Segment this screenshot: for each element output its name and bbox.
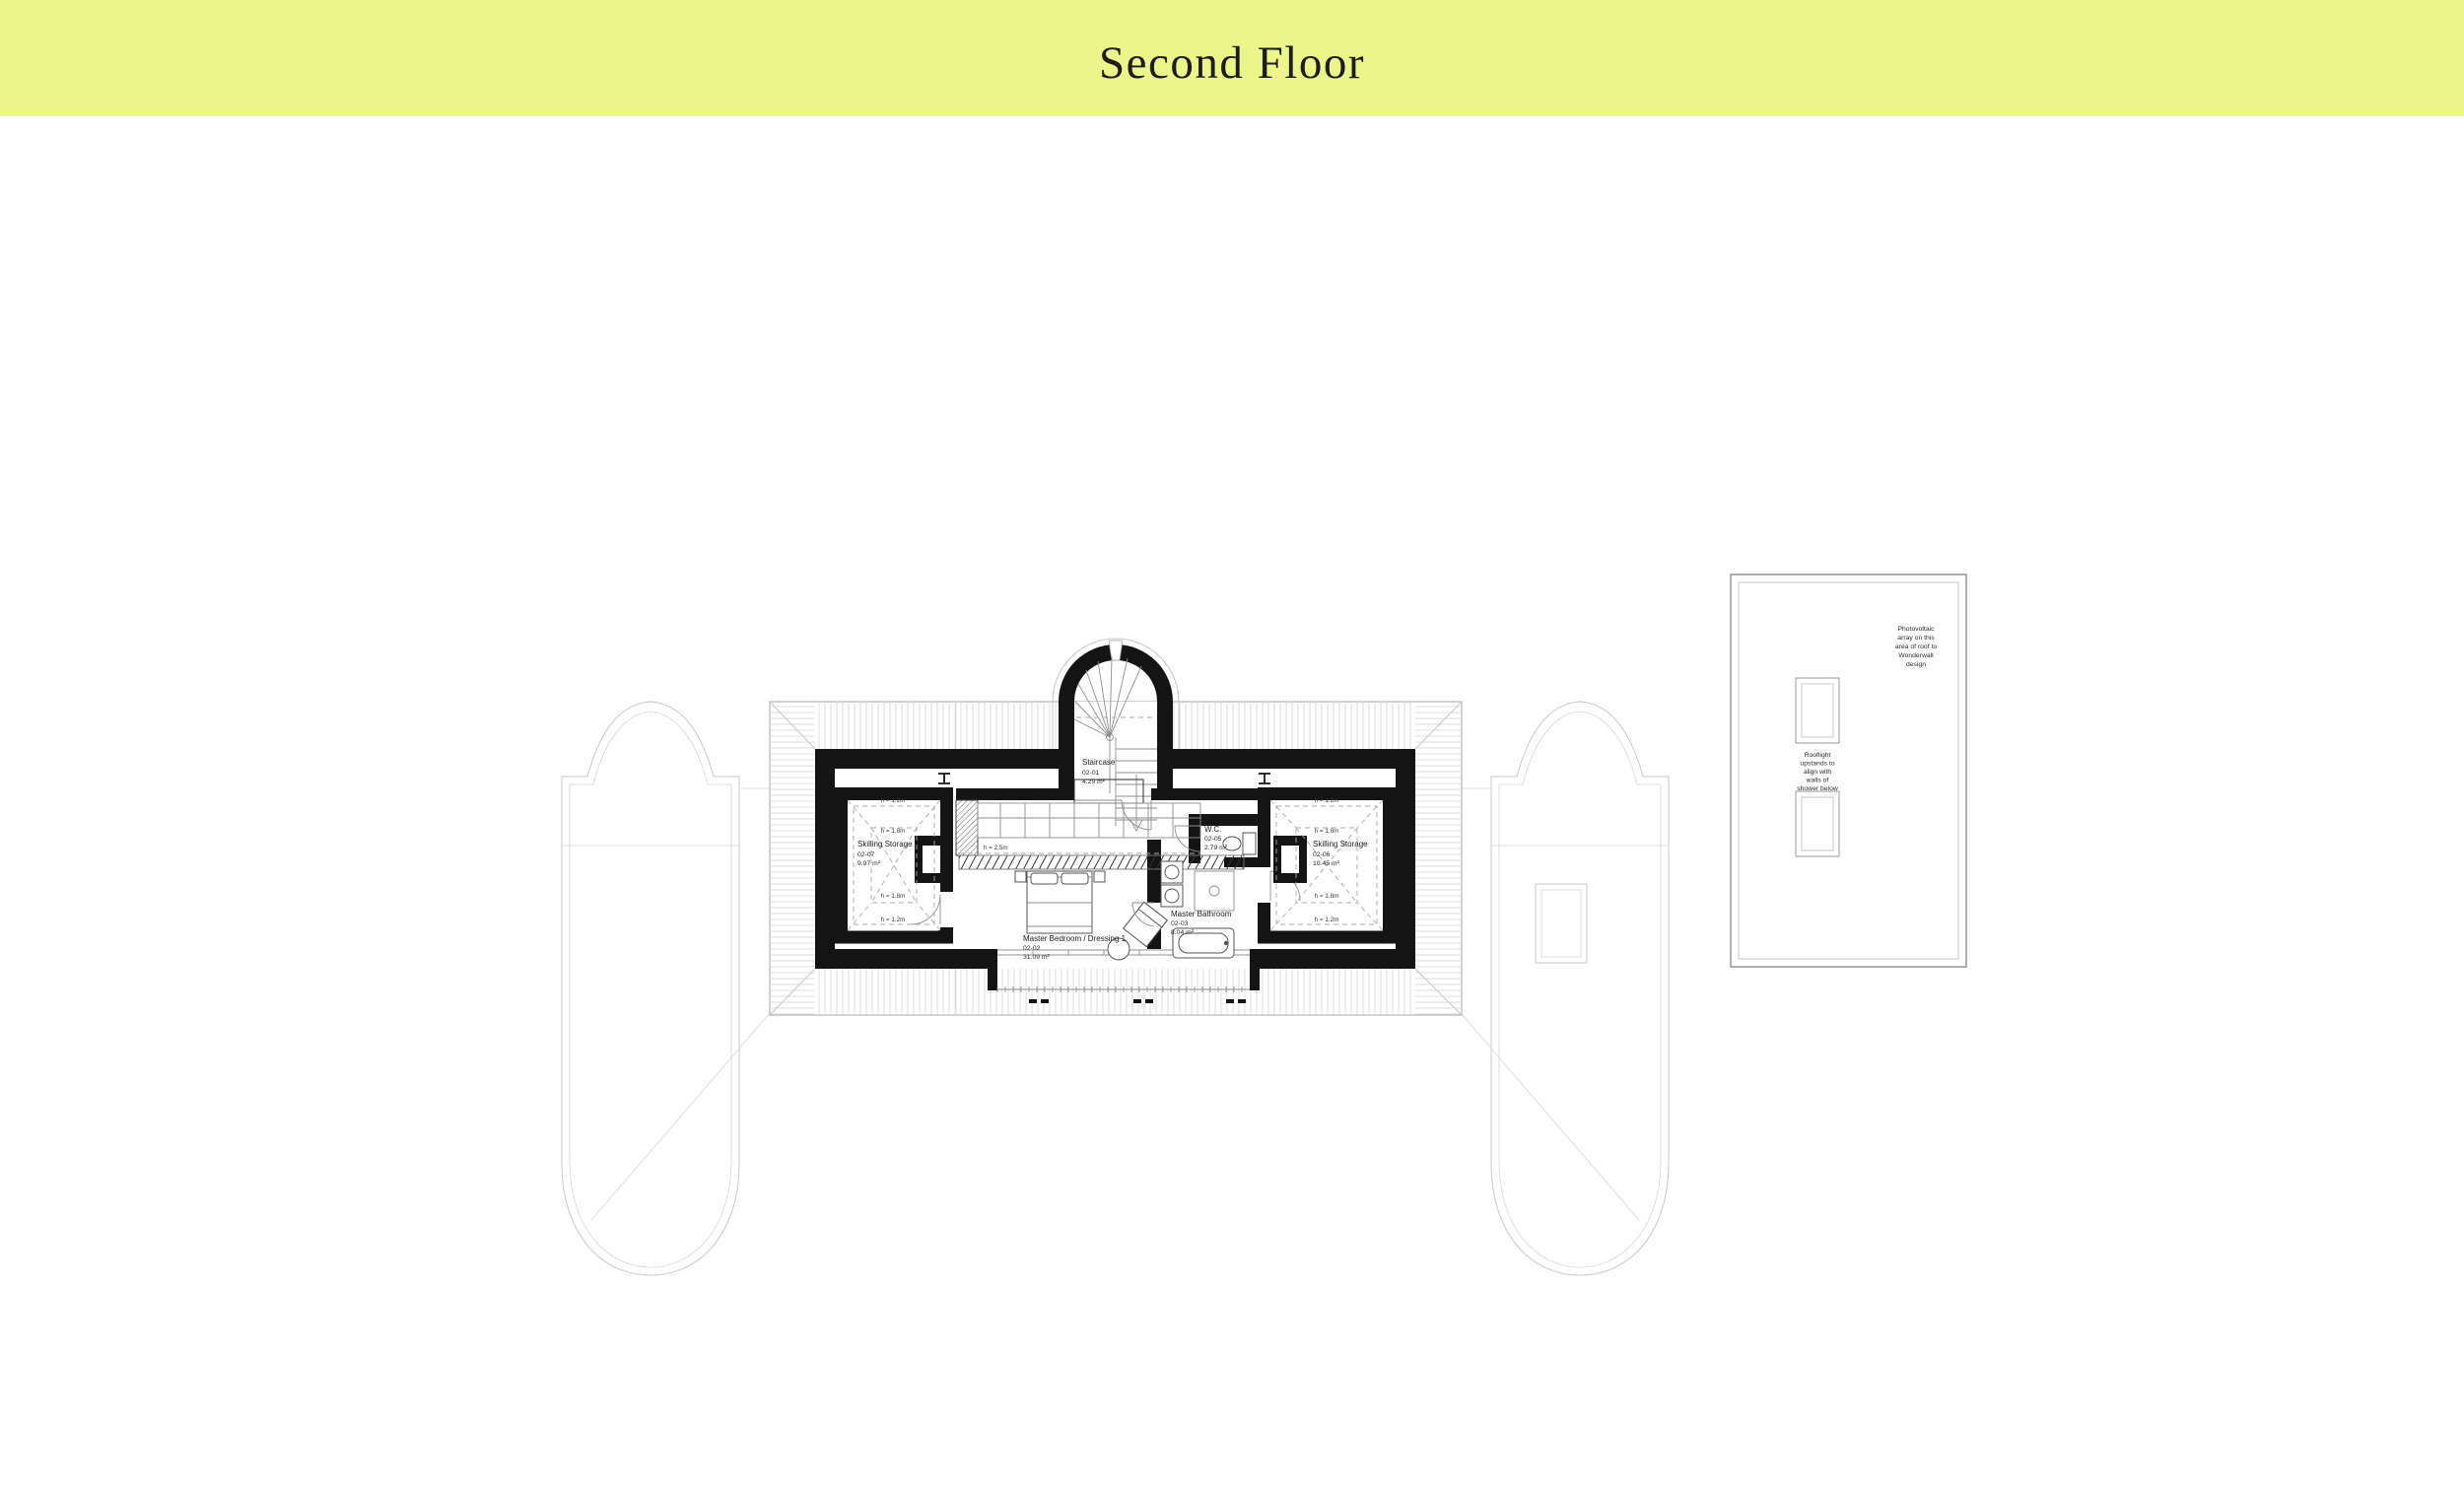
height-label: h = 1.2m <box>1315 797 1339 804</box>
toilet <box>1243 833 1256 854</box>
svg-text:design: design <box>1906 661 1926 668</box>
svg-text:Wonderwall: Wonderwall <box>1898 652 1934 659</box>
svg-text:02-06: 02-06 <box>1313 851 1331 858</box>
height-label: h = 1.8m <box>881 893 906 900</box>
height-label: h = 1.8m <box>1315 893 1339 900</box>
svg-text:02-03: 02-03 <box>1171 920 1189 927</box>
svg-text:02-02: 02-02 <box>1023 945 1041 952</box>
svg-text:8.04 m²: 8.04 m² <box>1171 929 1195 936</box>
svg-text:10.45 m²: 10.45 m² <box>1313 860 1340 867</box>
bed <box>1015 871 1105 933</box>
svg-text:9.97 m²: 9.97 m² <box>857 860 881 867</box>
roof-plan-panel: Rooflight upstands to align with walls o… <box>1731 575 1966 967</box>
page-canvas: Second Floor <box>0 0 2464 1493</box>
hanging-rail <box>959 855 1244 869</box>
height-label: h = 1.2m <box>881 916 906 923</box>
svg-text:Photovoltaic: Photovoltaic <box>1897 626 1935 633</box>
svg-text:2.79 m²: 2.79 m² <box>1204 845 1228 851</box>
room-skilling-storage-06: h = 1.2m h = 1.8m h = 1.8m h = 1.2m Skil… <box>1258 794 1390 938</box>
svg-text:walls of: walls of <box>1806 778 1829 784</box>
svg-text:Master Bathroom: Master Bathroom <box>1171 910 1232 918</box>
svg-text:02-01: 02-01 <box>1082 770 1100 777</box>
svg-text:Skilling Storage: Skilling Storage <box>857 840 913 848</box>
svg-text:31.09 m²: 31.09 m² <box>1023 954 1051 961</box>
height-label: h = 1.8m <box>881 828 906 835</box>
svg-text:Master Bedroom / Dressing 1: Master Bedroom / Dressing 1 <box>1023 934 1127 943</box>
svg-text:Staircase: Staircase <box>1082 758 1116 767</box>
height-label: h = 1.8m <box>1315 828 1339 835</box>
wing-rooflight <box>1536 884 1587 963</box>
svg-text:02-05: 02-05 <box>1204 836 1222 843</box>
svg-text:02-07: 02-07 <box>857 851 875 858</box>
height-label: h = 2.5m <box>984 845 1008 851</box>
svg-text:W.C.: W.C. <box>1204 825 1221 834</box>
left-roof-wing <box>562 702 770 1275</box>
svg-text:upstands to: upstands to <box>1800 761 1834 768</box>
svg-text:align with: align with <box>1804 769 1832 776</box>
svg-text:shower below: shower below <box>1797 785 1838 792</box>
height-label: h = 1.2m <box>881 797 906 804</box>
svg-text:area of roof to: area of roof to <box>1895 644 1938 650</box>
floor-plan: h = 1.2m h = 1.8m h = 1.8m h = 1.2m Skil… <box>562 639 1669 1275</box>
svg-text:array on this: array on this <box>1897 635 1935 642</box>
svg-text:Skilling Storage: Skilling Storage <box>1313 840 1368 848</box>
right-roof-wing <box>1461 702 1669 1275</box>
svg-text:Rooflight: Rooflight <box>1805 752 1831 759</box>
page-title: Second Floor <box>1099 37 1365 89</box>
height-label: h = 1.2m <box>1315 916 1339 923</box>
room-skilling-storage-07: h = 1.2m h = 1.8m h = 1.8m h = 1.2m Skil… <box>842 794 954 938</box>
